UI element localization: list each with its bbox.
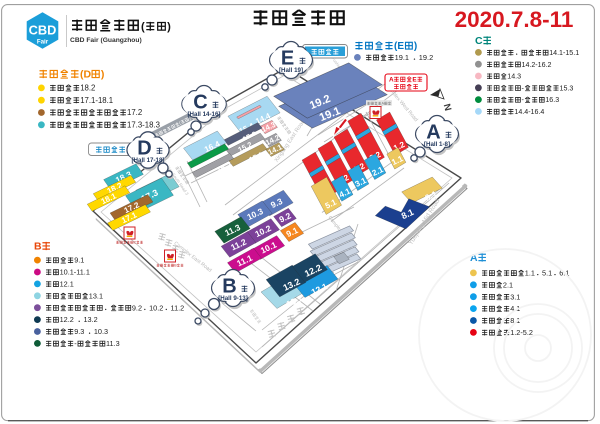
svg-text:C: C — [475, 35, 483, 47]
svg-text:): ) — [414, 41, 417, 52]
svg-text:9.1: 9.1 — [74, 256, 84, 265]
svg-text:2020.7.8-11: 2020.7.8-11 — [455, 7, 574, 32]
svg-text:10.3: 10.3 — [94, 327, 108, 336]
svg-text:10.2: 10.2 — [149, 303, 163, 312]
svg-text:15.3: 15.3 — [560, 84, 574, 92]
svg-text:[Hall 14-16]: [Hall 14-16] — [187, 111, 220, 118]
svg-text:19.2: 19.2 — [419, 53, 433, 62]
svg-text:11.3: 11.3 — [106, 339, 120, 348]
svg-text:C: C — [134, 241, 137, 245]
svg-text:C: C — [193, 92, 207, 114]
svg-text:10.1-11.1: 10.1-11.1 — [60, 268, 90, 277]
svg-text:E: E — [412, 76, 417, 83]
svg-text:11.2: 11.2 — [171, 303, 185, 312]
svg-text:19.1: 19.1 — [395, 53, 409, 62]
svg-text:Fair: Fair — [37, 39, 49, 46]
svg-text:14.4-16.4: 14.4-16.4 — [514, 108, 544, 116]
svg-text:A: A — [426, 122, 440, 144]
svg-text:CBD Fair (Guangzhou): CBD Fair (Guangzhou) — [70, 37, 142, 44]
svg-text:1.2-5.2: 1.2-5.2 — [510, 328, 533, 337]
svg-text:14.1-15.1: 14.1-15.1 — [549, 49, 579, 57]
svg-text:3.1: 3.1 — [510, 292, 520, 301]
svg-text:12.1: 12.1 — [60, 280, 74, 289]
svg-text:17.2: 17.2 — [127, 108, 142, 117]
svg-text:(D: (D — [80, 69, 91, 81]
svg-text:): ) — [101, 69, 105, 81]
svg-text:[Hall 17-18]: [Hall 17-18] — [131, 157, 164, 164]
svg-text:[Hall 19]: [Hall 19] — [279, 67, 303, 74]
svg-text:(E: (E — [394, 41, 404, 52]
svg-text:(: ( — [141, 21, 145, 33]
svg-text:5.1: 5.1 — [542, 269, 552, 278]
svg-text:): ) — [167, 21, 171, 33]
svg-text:9.2: 9.2 — [132, 303, 142, 312]
svg-text:CBD: CBD — [29, 23, 57, 38]
svg-text:17.1-18.1: 17.1-18.1 — [80, 96, 113, 105]
svg-text:14.3: 14.3 — [507, 73, 521, 81]
svg-text:B: B — [34, 241, 42, 253]
svg-text:13.2: 13.2 — [83, 315, 97, 324]
svg-text:12.2: 12.2 — [60, 315, 74, 324]
svg-text:E: E — [281, 48, 294, 70]
svg-text:[Hall 9-13]: [Hall 9-13] — [218, 295, 248, 302]
svg-text:18.2: 18.2 — [80, 84, 95, 93]
svg-text:[Hall 1-8]: [Hall 1-8] — [424, 141, 450, 148]
svg-text:9.3: 9.3 — [74, 327, 84, 336]
svg-text:B: B — [222, 276, 236, 298]
svg-text:14.2-16.2: 14.2-16.2 — [522, 61, 552, 69]
svg-text:16.3: 16.3 — [545, 96, 559, 104]
svg-text:13.1: 13.1 — [89, 291, 103, 300]
svg-text:D: D — [137, 138, 151, 160]
svg-text:A: A — [389, 76, 394, 83]
svg-text:1.1: 1.1 — [525, 269, 535, 278]
svg-text:2.1: 2.1 — [503, 280, 513, 289]
svg-text:17.3-18.3: 17.3-18.3 — [127, 120, 160, 129]
